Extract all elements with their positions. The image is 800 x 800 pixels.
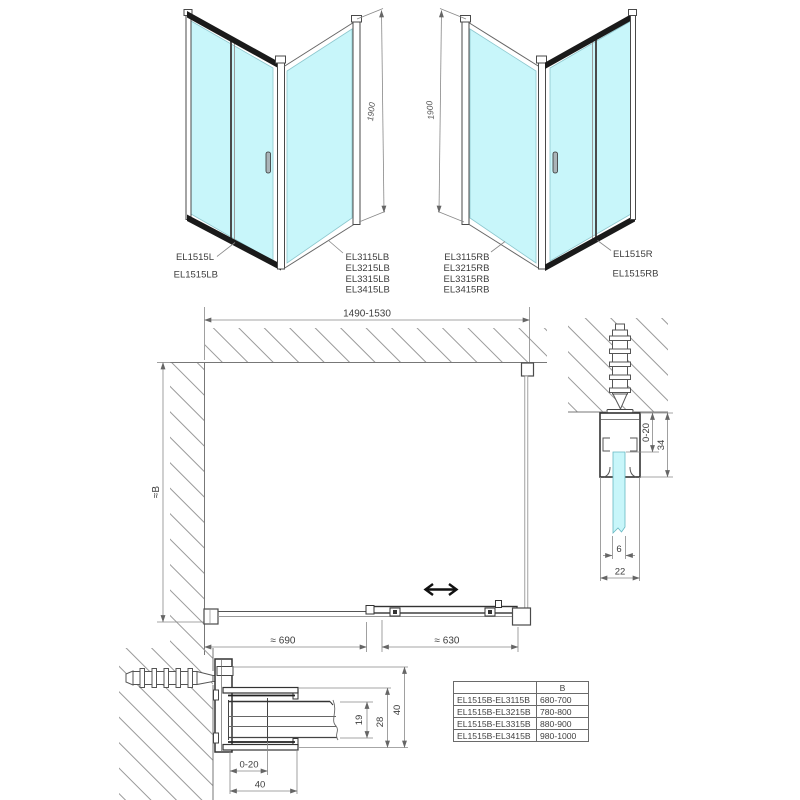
iso-right-corner-post — [539, 60, 546, 269]
iso-left-door-label-2: EL1515LB — [174, 270, 218, 281]
b-value-cell: 980-1000 — [537, 730, 589, 742]
profile-adjust-label: 0-20 — [641, 423, 652, 442]
iso-right-door-label-1: EL1515R — [613, 249, 653, 260]
technical-drawing-page: 1900 EL1515L EL1515LB EL3115LB EL3215LB … — [0, 0, 800, 800]
model-range-cell: EL1515B-EL3415B — [454, 730, 537, 742]
plan-view: 1490-1530 ≈B — [151, 307, 547, 655]
iso-right-panel-label-2: EL3215RB — [444, 263, 490, 274]
iso-right-height-dimension: 1900 — [424, 9, 466, 223]
b-value-cell: 780-800 — [537, 706, 589, 718]
detail-glass-panes — [229, 698, 339, 742]
plan-corner-profile — [513, 608, 531, 625]
iso-left-side-glass — [287, 29, 352, 263]
iso-right-panel-label-1: EL3115RB — [444, 252, 489, 263]
slide-direction-arrow-icon — [426, 584, 457, 595]
iso-left-panel-label-2: EL3215LB — [346, 263, 390, 274]
plan-door-assembly — [204, 601, 531, 626]
iso-left-panel-post — [353, 20, 360, 225]
size-table: B EL1515B-EL3115B 680-700 EL1515B-EL3215… — [453, 681, 589, 742]
plan-fixed-part-label: ≈ 690 — [271, 636, 296, 647]
table-row: EL1515B-EL3115B 680-700 — [454, 694, 589, 706]
plan-side-panel-glass — [525, 376, 528, 609]
iso-left-wall-post — [186, 14, 191, 220]
size-table-header-row: B — [454, 682, 589, 694]
model-range-cell: EL1515B-EL3315B — [454, 718, 537, 730]
b-value-cell: 680-700 — [537, 694, 589, 706]
iso-left-corner-post — [278, 60, 285, 269]
detail-inner-depth-label: 28 — [375, 717, 386, 728]
iso-right-panel-post — [462, 20, 469, 225]
table-row: EL1515B-EL3315B 880-900 — [454, 718, 589, 730]
wall-profile-section-detail: 19 28 40 0-20 40 — [119, 648, 408, 800]
iso-left-view: 1900 EL1515L EL1515LB EL3115LB EL3215LB … — [174, 9, 390, 296]
profile-width-label: 22 — [615, 567, 626, 578]
plan-left-wall-hatch — [170, 363, 205, 651]
profile-width-dimension: 22 — [601, 567, 640, 579]
profile-height-label: 34 — [656, 440, 667, 451]
iso-left-height-dimension: 1900 — [357, 9, 385, 223]
detail-profile-width-label: 40 — [255, 780, 266, 791]
section-glass-pane — [613, 452, 625, 533]
table-row: EL1515B-EL3415B 980-1000 — [454, 730, 589, 742]
plan-depth-label: ≈B — [151, 486, 162, 498]
plan-door-part-label: ≈ 630 — [435, 636, 460, 647]
iso-left-door-handle — [266, 152, 271, 173]
b-value-cell: 880-900 — [537, 718, 589, 730]
iso-right-height-label: 1900 — [424, 100, 436, 120]
plan-handle-stub — [496, 601, 502, 608]
iso-right-panel-label-3: EL3315RB — [444, 274, 490, 285]
detail-dimensions: 19 28 40 0-20 40 — [230, 667, 405, 791]
iso-left-door-label-1: EL1515L — [176, 252, 214, 263]
plan-top-wall-hatch — [205, 328, 547, 363]
detail-adjust-profile — [223, 688, 298, 751]
iso-left-panel-label-3: EL3315LB — [346, 274, 390, 285]
iso-right-door-handle — [553, 152, 558, 173]
detail-adjust-label: 0-20 — [239, 760, 258, 771]
iso-left-panel-label-4: EL3415LB — [346, 285, 390, 296]
iso-right-door-label-2: EL1515RB — [613, 269, 659, 280]
plan-side-panel-wall-bracket — [522, 363, 534, 376]
iso-right-panel-label-4: EL3415RB — [444, 285, 490, 296]
iso-right-view: 1900 EL3115RB EL3215RB EL3315RB EL3415RB… — [424, 9, 658, 296]
table-row: EL1515B-EL3215B 780-800 — [454, 706, 589, 718]
model-range-cell: EL1515B-EL3115B — [454, 694, 537, 706]
iso-right-side-glass — [470, 29, 536, 263]
iso-right-wall-post — [631, 14, 636, 220]
plan-width-label: 1490-1530 — [343, 309, 391, 320]
detail-profile-depth-label: 40 — [392, 705, 403, 716]
size-table-models-header — [454, 682, 537, 694]
glass-thickness-dimension: 6 — [603, 536, 635, 559]
plan-door-wall-profile — [204, 609, 218, 624]
size-table-b-header: B — [537, 682, 589, 694]
detail-glass-gap-label: 19 — [354, 715, 365, 726]
plan-bottom-dimensions: ≈ 690 ≈ 630 — [205, 620, 519, 652]
iso-left-height-label: 1900 — [365, 101, 377, 121]
shower-enclosure-drawing: 1900 EL1515L EL1515LB EL3115LB EL3215LB … — [0, 0, 800, 800]
model-range-cell: EL1515B-EL3215B — [454, 706, 537, 718]
iso-left-panel-label-1: EL3115LB — [346, 252, 390, 263]
top-profile-section-detail: 6 22 0-20 34 — [568, 318, 673, 581]
glass-thickness-label: 6 — [616, 544, 621, 555]
